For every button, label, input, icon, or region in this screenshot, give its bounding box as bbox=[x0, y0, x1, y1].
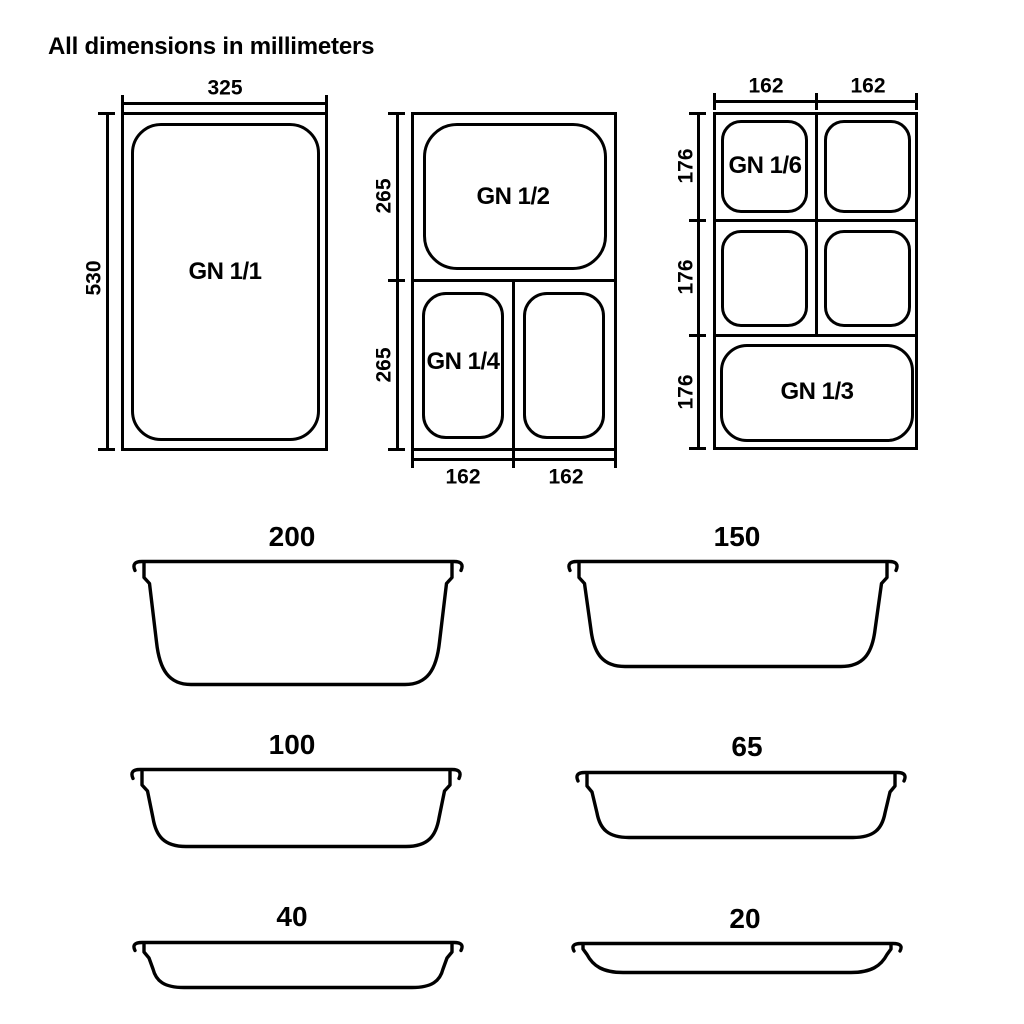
pan-rim-line bbox=[577, 773, 905, 782]
divider-vertical bbox=[512, 282, 515, 451]
gn-full-height-dim-line bbox=[106, 112, 109, 451]
dim-tick bbox=[98, 448, 115, 451]
gn-third-row3-dim: 176 bbox=[676, 374, 697, 409]
dim-tick bbox=[689, 112, 706, 115]
gn-sixth-row2-dim: 176 bbox=[676, 259, 697, 294]
dim-tick bbox=[689, 219, 706, 222]
dim-tick bbox=[689, 334, 706, 337]
pan-depth-label-200: 200 bbox=[269, 523, 316, 551]
pan-rim-line bbox=[573, 944, 901, 952]
gn-half-height-dim: 265 bbox=[374, 178, 395, 213]
pan-bowl-outline bbox=[144, 943, 452, 988]
gn-sixth-pan-outline-ml bbox=[721, 230, 808, 327]
dim-tick bbox=[512, 451, 515, 468]
pan-rim-line bbox=[132, 770, 460, 779]
gn-full-width-dim: 325 bbox=[207, 78, 242, 99]
pan-profile-100 bbox=[126, 764, 466, 854]
gn-quarter-width-dim-right: 162 bbox=[548, 467, 583, 488]
page-title: All dimensions in millimeters bbox=[48, 33, 374, 61]
dim-tick bbox=[388, 112, 405, 115]
gn-sixth-row1-dim: 176 bbox=[676, 148, 697, 183]
gn-full-label: GN 1/1 bbox=[188, 260, 261, 284]
gn-sixth-width-dim-left: 162 bbox=[748, 76, 783, 97]
dim-tick bbox=[815, 93, 818, 110]
dim-tick bbox=[411, 451, 414, 468]
gn-sixth-label: GN 1/6 bbox=[728, 154, 801, 178]
gn-full-height-dim: 530 bbox=[84, 260, 105, 295]
gn-quarter-height-dim: 265 bbox=[374, 347, 395, 382]
gn-sixth-pan-outline-mr bbox=[824, 230, 911, 327]
dim-tick bbox=[614, 451, 617, 468]
pan-bowl-outline bbox=[579, 562, 887, 667]
gn-full-width-dim-line bbox=[121, 102, 328, 105]
pan-profile-150 bbox=[563, 556, 903, 672]
pan-depth-label-40: 40 bbox=[276, 903, 307, 931]
gn-half-label: GN 1/2 bbox=[476, 185, 549, 209]
dim-tick bbox=[689, 447, 706, 450]
gn-third-label: GN 1/3 bbox=[780, 380, 853, 404]
dim-tick bbox=[98, 112, 115, 115]
dim-tick bbox=[713, 93, 716, 110]
pan-depth-label-150: 150 bbox=[714, 523, 761, 551]
pan-profile-65 bbox=[571, 767, 911, 845]
pan-profile-40 bbox=[128, 937, 468, 995]
pan-rim-line bbox=[134, 562, 462, 571]
pan-profile-20 bbox=[567, 938, 907, 980]
diagram-canvas: All dimensions in millimeters GN 1/1 325… bbox=[0, 0, 1024, 1024]
dim-tick bbox=[915, 93, 918, 110]
pan-bowl-outline bbox=[142, 770, 450, 847]
dim-tick bbox=[325, 95, 328, 112]
pan-bowl-outline bbox=[583, 944, 891, 973]
pan-rim-line bbox=[134, 943, 462, 951]
gn-sixth-width-dim-right: 162 bbox=[850, 76, 885, 97]
gn-quarter-label: GN 1/4 bbox=[426, 350, 499, 374]
pan-depth-label-65: 65 bbox=[731, 733, 762, 761]
divider-vertical bbox=[815, 112, 818, 337]
dim-tick bbox=[388, 279, 405, 282]
gn-quarter-width-dim-left: 162 bbox=[445, 467, 480, 488]
pan-depth-label-20: 20 bbox=[729, 905, 760, 933]
dim-tick bbox=[121, 95, 124, 112]
pan-rim-line bbox=[569, 562, 897, 571]
pan-profile-200 bbox=[128, 556, 468, 696]
gn-quarter-pan-outline-right bbox=[523, 292, 605, 439]
pan-bowl-outline bbox=[144, 562, 452, 685]
gn-sixth-pan-outline-tr bbox=[824, 120, 911, 213]
pan-depth-label-100: 100 bbox=[269, 731, 316, 759]
pan-bowl-outline bbox=[587, 773, 895, 838]
dim-tick bbox=[388, 448, 405, 451]
